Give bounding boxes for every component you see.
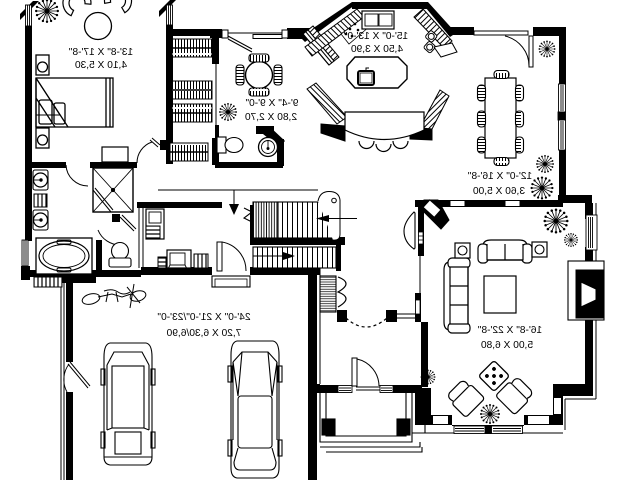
svg-text:4,10 X 5,30: 4,10 X 5,30: [75, 60, 127, 71]
svg-text:3,60 X 5,00: 3,60 X 5,00: [473, 186, 525, 197]
svg-text:13'-8" X 17'-8": 13'-8" X 17'-8": [68, 47, 133, 58]
svg-text:4,50 X 3,90: 4,50 X 3,90: [351, 44, 403, 55]
svg-text:15'-0" X 13'-0": 15'-0" X 13'-0": [343, 31, 408, 42]
svg-text:24'-0" X 21'-0"/23'-0": 24'-0" X 21'-0"/23'-0": [157, 312, 251, 323]
svg-text:9'-4" X 9'-0": 9'-4" X 9'-0": [245, 98, 298, 109]
svg-text:12'-0" X 16'-8": 12'-0" X 16'-8": [467, 171, 532, 182]
svg-text:2,80 X 2,70: 2,80 X 2,70: [245, 112, 297, 123]
svg-text:16'-8" X 22'-8": 16'-8" X 22'-8": [477, 325, 542, 336]
svg-text:7,20 X 6,30/6,90: 7,20 X 6,30/6,90: [166, 328, 241, 339]
svg-text:5,00 X 6,80: 5,00 X 6,80: [481, 340, 533, 351]
